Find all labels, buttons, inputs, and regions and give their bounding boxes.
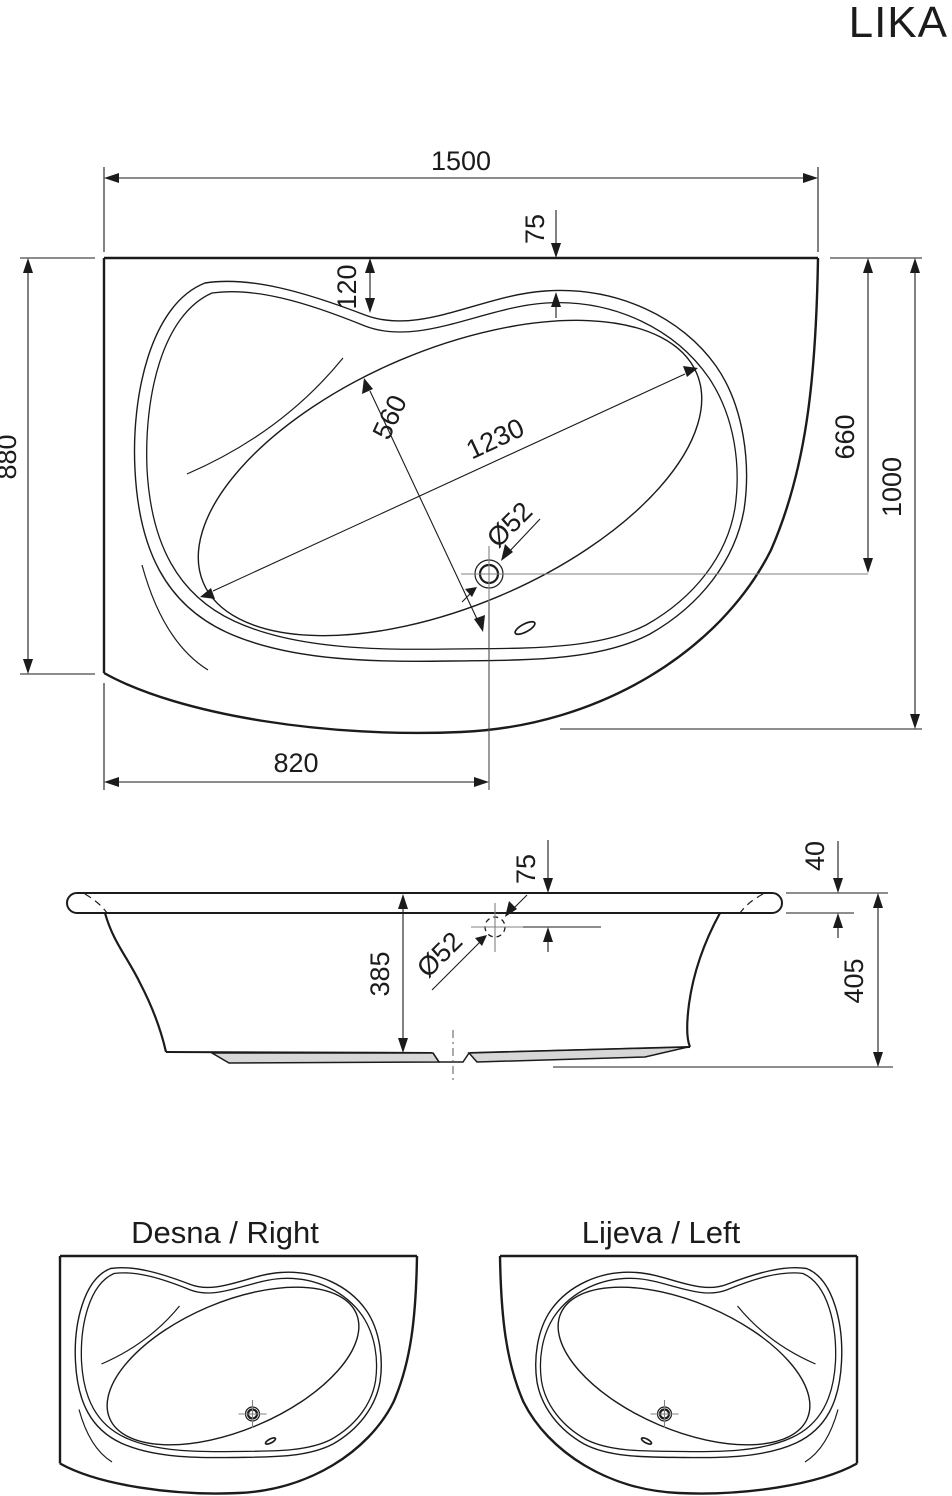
- variant-right-label: Desna / Right: [131, 1215, 319, 1250]
- side-view: 75 40 385 405 Ø52: [67, 840, 893, 1083]
- side-view-body: [67, 893, 893, 1083]
- drawing-page: LIKA: [0, 0, 952, 1496]
- dim-drain-diameter-label: Ø52: [481, 496, 538, 553]
- variant-right: Desna / Right: [60, 1215, 417, 1493]
- dim-overflow-diameter-label: Ø52: [411, 926, 468, 983]
- top-view: 1500 880 660 1000 820 120 75 560 1230 Ø5…: [0, 146, 922, 790]
- dim-rim-width-top-label: 75: [520, 214, 550, 244]
- dim-overall-width-label: 1500: [431, 146, 491, 176]
- dim-drain-from-wall-label: 660: [830, 414, 860, 459]
- side-view-dimensions: [398, 840, 888, 1067]
- dim-rim-width-left-label: 120: [332, 264, 362, 309]
- variant-left: Lijeva / Left: [500, 1215, 857, 1493]
- technical-drawing: LIKA: [0, 0, 952, 1496]
- variant-left-label: Lijeva / Left: [582, 1215, 741, 1250]
- dim-overall-height-label: 405: [839, 958, 869, 1003]
- dim-inner-depth-label: 385: [365, 951, 395, 996]
- dim-drain-from-left-label: 820: [273, 748, 318, 778]
- dim-overall-depth-label: 1000: [877, 457, 907, 517]
- dim-basin-major-label: 1230: [462, 413, 529, 466]
- dim-overflow-from-rim-label: 75: [511, 854, 541, 884]
- drawing-title: LIKA: [849, 0, 948, 47]
- dim-rim-thickness-label: 40: [800, 841, 830, 871]
- dim-left-depth-label: 880: [0, 434, 22, 479]
